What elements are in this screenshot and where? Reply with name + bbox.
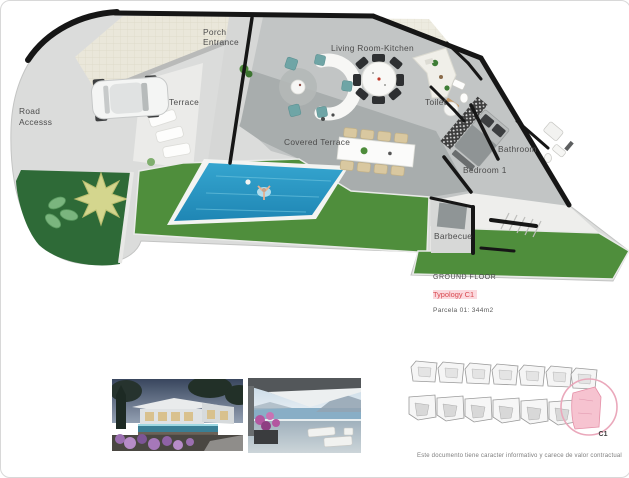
photo-villa-night xyxy=(112,379,243,451)
highlighted-plot xyxy=(572,387,601,429)
coffee-table xyxy=(291,80,305,94)
photo-villa-night-image xyxy=(112,379,243,451)
agave-plant xyxy=(75,173,127,225)
label-barbecue: Barbecue xyxy=(434,231,472,241)
site-plan: C1 xyxy=(403,353,628,449)
label-road-2: Accesss xyxy=(19,117,52,127)
bathroom-fixtures xyxy=(543,121,574,162)
floor-plan: Porch Entrance Living Room-Kitchen Road … xyxy=(1,1,629,331)
car xyxy=(91,74,170,121)
barbecue-counter xyxy=(437,203,467,230)
label-bathroom: Bathroom xyxy=(498,144,537,154)
plan-caption: GROUND FLOOR Typology C1 Parcela 01: 344… xyxy=(433,274,496,315)
site-plan-row-upper xyxy=(411,361,597,389)
site-plan-unit-label: C1 xyxy=(599,431,608,438)
label-bedroom: Bedroom 1 xyxy=(463,165,507,175)
photo-terrace-view xyxy=(248,378,361,453)
photo-terrace-view-image xyxy=(248,378,361,453)
brochure-page: Porch Entrance Living Room-Kitchen Road … xyxy=(0,0,629,478)
pool-float xyxy=(245,179,250,184)
dining-table xyxy=(353,54,404,104)
site-plan-row-lower xyxy=(409,395,576,425)
label-porch: Porch xyxy=(203,27,226,37)
label-porch-2: Entrance xyxy=(203,37,239,47)
parcel-info: Parcela 01: 344m2 xyxy=(433,307,496,315)
typology-badge: Typology C1 xyxy=(433,290,477,299)
disclaimer-text: Este documento tiene caracter informativ… xyxy=(417,453,622,459)
label-road: Road xyxy=(19,106,40,116)
terrace-plant xyxy=(147,158,155,166)
floor-title: GROUND FLOOR xyxy=(433,274,496,283)
label-terrace: Terrace xyxy=(169,97,199,107)
label-living-room: Living Room-Kitchen xyxy=(331,43,414,53)
label-covered-terrace: Covered Terrace xyxy=(284,137,350,147)
label-toilet: Toilet xyxy=(425,97,447,107)
